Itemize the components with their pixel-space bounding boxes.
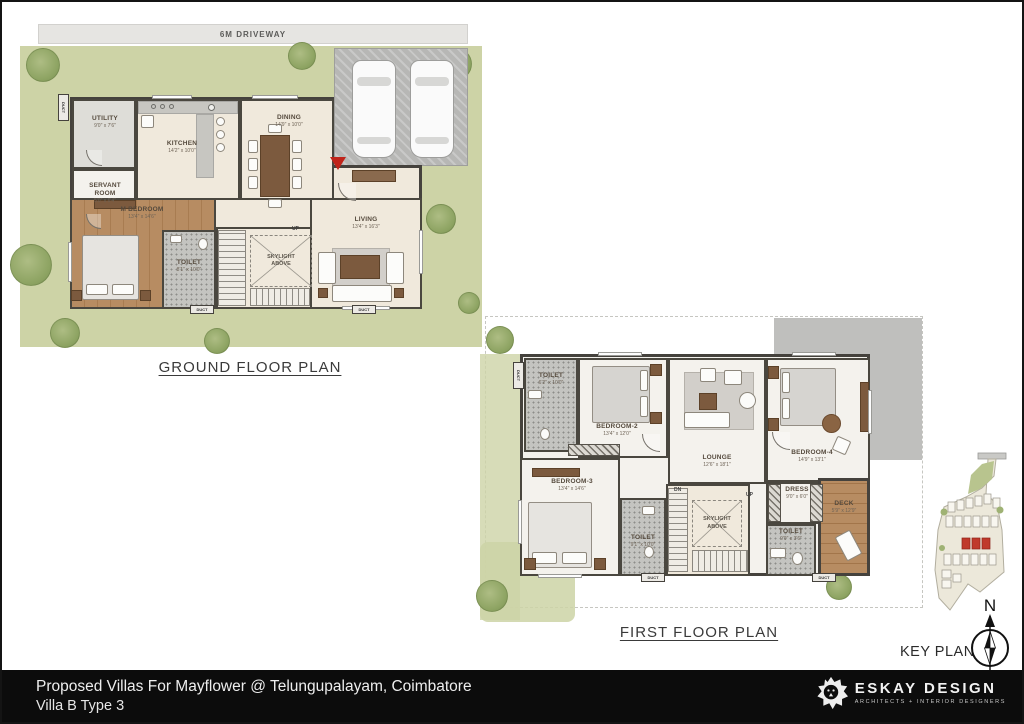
duct-label: DUCT <box>358 307 369 312</box>
ground-floor-plan: 6M DRIVEWAY <box>2 2 502 402</box>
dining-chair <box>268 199 282 208</box>
car-windshield <box>415 77 449 86</box>
nightstand <box>140 290 151 301</box>
first-floor-plan: SKYLIGHT ABOVE DN UP DUCT DUCT DUCT TOIL… <box>472 302 932 662</box>
stove-burner-icon <box>160 104 165 109</box>
round-rug <box>822 414 841 433</box>
dining-chair <box>292 158 302 171</box>
tree-icon <box>26 48 60 82</box>
skylight-label-ff: SKYLIGHT ABOVE <box>695 516 739 530</box>
floor-plan-sheet: 6M DRIVEWAY <box>0 0 1024 724</box>
window-icon <box>598 352 642 356</box>
car-icon <box>352 60 396 158</box>
window-icon <box>419 230 423 274</box>
duct-box: DUCT <box>58 94 69 121</box>
entry-marker-icon <box>330 157 346 170</box>
kitchen-sink-unit <box>141 115 154 128</box>
tree-icon <box>204 328 230 354</box>
coffee-table <box>699 393 717 410</box>
armchair-icon <box>386 252 404 284</box>
sofa-icon <box>332 285 392 302</box>
car-rear-window <box>415 137 449 144</box>
dining-chair <box>292 176 302 189</box>
duct-box: DUCT <box>812 573 836 582</box>
car-windshield <box>357 77 391 86</box>
dining-chair <box>248 158 258 171</box>
duct-label: DUCT <box>516 370 521 381</box>
car-icon <box>410 60 454 158</box>
wardrobe <box>810 484 823 522</box>
stair-flight <box>692 550 748 572</box>
washbasin-icon <box>528 390 542 399</box>
window-icon <box>152 95 192 99</box>
kitchen-counter-side <box>196 114 214 178</box>
pillow <box>86 284 108 295</box>
window-icon <box>518 500 522 544</box>
duct-label: DUCT <box>647 575 658 580</box>
skylight-above-gf: SKYLIGHT ABOVE <box>250 235 312 287</box>
duct-box: DUCT <box>641 573 665 582</box>
bar-stool-icon <box>216 117 225 126</box>
window-icon <box>868 390 872 434</box>
lion-icon <box>814 676 848 710</box>
driveway-band: 6M DRIVEWAY <box>38 24 468 44</box>
wc-icon <box>198 238 208 250</box>
dresser <box>532 468 580 477</box>
nightstand <box>650 412 662 424</box>
dining-chair <box>248 140 258 153</box>
pillow <box>640 396 648 417</box>
keyplan-tree-icon <box>939 545 945 551</box>
dining-chair <box>248 176 258 189</box>
keyplan-road <box>978 453 1006 459</box>
tree-icon <box>50 318 80 348</box>
driveway-label: 6M DRIVEWAY <box>220 30 286 39</box>
window-icon <box>68 242 72 282</box>
duct-label: DUCT <box>196 307 207 312</box>
north-label: N <box>984 596 996 615</box>
wardrobe <box>768 484 781 522</box>
dining-table <box>260 135 290 197</box>
nightstand <box>650 364 662 376</box>
stair-flight <box>250 288 310 306</box>
wc-icon <box>792 552 803 565</box>
window-icon <box>252 95 298 99</box>
logo-name: ESKAY DESIGN <box>855 681 1006 698</box>
armchair-icon <box>724 370 742 385</box>
pillow <box>562 552 587 564</box>
tree-icon <box>426 204 456 234</box>
duct-label: DUCT <box>61 102 66 113</box>
nightstand <box>524 558 536 570</box>
pillow <box>782 398 790 419</box>
pillow <box>782 372 790 393</box>
washbasin-icon <box>642 506 655 515</box>
tree-icon <box>10 244 52 286</box>
project-title: Proposed Villas For Mayflower @ Telungup… <box>36 678 472 696</box>
window-icon <box>792 352 836 356</box>
door-mat <box>352 170 396 182</box>
tree-icon <box>476 580 508 612</box>
stove-burner-icon <box>151 104 156 109</box>
pillow <box>640 370 648 391</box>
dining-chair <box>292 140 302 153</box>
duct-box: DUCT <box>513 362 524 389</box>
sofa-icon <box>684 412 730 428</box>
nightstand <box>768 366 779 379</box>
nightstand <box>594 558 606 570</box>
logo-text-block: ESKAY DESIGN ARCHITECTS + INTERIOR DESIG… <box>855 681 1006 706</box>
sink-icon <box>208 104 215 111</box>
up-label-gf: UP <box>292 226 299 232</box>
room-toilet-top <box>524 358 578 452</box>
keyplan-tree-icon <box>997 507 1004 514</box>
north-compass-icon: N <box>964 596 1016 680</box>
first-floor-title: FIRST FLOOR PLAN <box>579 624 819 641</box>
dresser <box>94 200 136 209</box>
nightstand <box>768 418 779 431</box>
round-chair-icon <box>739 392 756 409</box>
duct-label: DUCT <box>818 575 829 580</box>
duct-box: DUCT <box>352 305 376 314</box>
car-rear-window <box>357 137 391 144</box>
room-deck <box>818 478 870 576</box>
skylight-above-ff: SKYLIGHT ABOVE <box>692 500 742 547</box>
dn-label: DN <box>674 487 681 493</box>
stair-flight <box>218 230 246 306</box>
villa-type-label: Villa B Type 3 <box>36 698 124 714</box>
title-block-bar: Proposed Villas For Mayflower @ Telungup… <box>2 670 1022 722</box>
ground-floor-title: GROUND FLOOR PLAN <box>130 359 370 376</box>
side-table <box>318 288 328 298</box>
armchair-icon <box>318 252 336 284</box>
key-plan-map <box>930 450 1012 618</box>
bar-stool-icon <box>216 143 225 152</box>
washbasin-icon <box>770 548 786 558</box>
up-label-ff: UP <box>746 492 753 498</box>
room-utility <box>72 99 136 169</box>
washbasin-icon <box>170 235 182 243</box>
skylight-label-gf: SKYLIGHT ABOVE <box>259 254 303 268</box>
eskay-design-logo: ESKAY DESIGN ARCHITECTS + INTERIOR DESIG… <box>814 676 1006 710</box>
stove-burner-icon <box>169 104 174 109</box>
keyplan-highlighted-villas <box>962 538 990 549</box>
dining-chair <box>268 124 282 133</box>
wardrobe <box>568 444 620 456</box>
armchair-icon <box>700 368 716 382</box>
side-table <box>394 288 404 298</box>
duct-box: DUCT <box>190 305 214 314</box>
tree-icon <box>486 326 514 354</box>
tree-icon <box>288 42 316 70</box>
stair-flight <box>668 488 688 572</box>
nightstand <box>71 290 82 301</box>
window-icon <box>538 574 582 578</box>
bar-stool-icon <box>216 130 225 139</box>
wc-icon <box>644 546 654 558</box>
wc-icon <box>540 428 550 440</box>
coffee-table <box>340 255 380 279</box>
keyplan-tree-icon <box>941 509 948 516</box>
pillow <box>112 284 134 295</box>
logo-tagline: ARCHITECTS + INTERIOR DESIGNERS <box>855 699 1006 705</box>
